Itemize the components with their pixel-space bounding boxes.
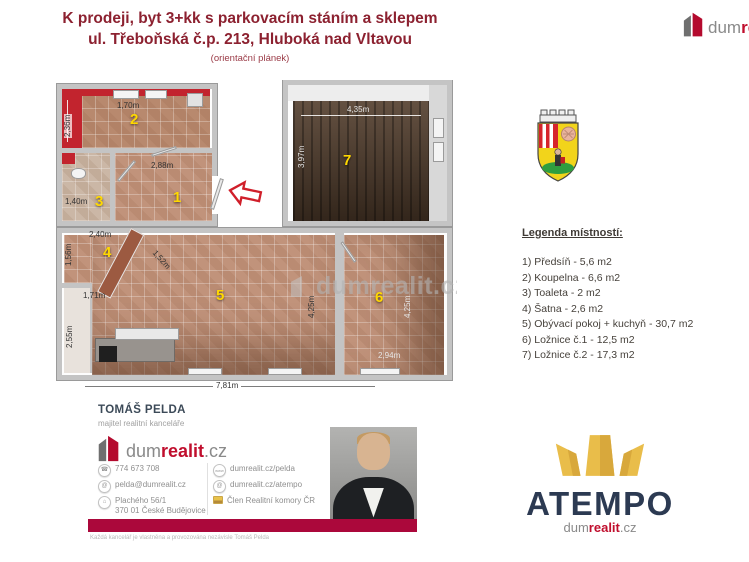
room-number-1: 1 <box>173 189 181 206</box>
agent-web-office: dumrealit.cz/atempo <box>230 480 302 490</box>
location-icon: ⌂ <box>98 496 111 509</box>
agent-email: pelda@dumrealit.cz <box>115 480 186 490</box>
dumrealit-logo-card: dumrealit.cz <box>97 434 257 466</box>
dim-room2-width: 1,70m <box>117 102 139 110</box>
page-title: K prodeji, byt 3+kk s parkovacím stáním … <box>15 8 485 29</box>
legend: Legenda místností: 1) Předsíň - 5,6 m2 2… <box>522 227 747 364</box>
room-number-5: 5 <box>216 287 224 304</box>
dim-room7-height: 3,97m <box>298 146 306 168</box>
legend-item: 4) Šatna - 2,6 m2 <box>522 302 747 318</box>
agent-membership: Člen Realitní komory ČR <box>227 496 315 506</box>
washing-machine <box>187 93 203 107</box>
window <box>268 368 302 375</box>
contact-web-row: www dumrealit.cz/pelda <box>213 464 295 477</box>
toilet-bowl <box>71 168 86 179</box>
room-number-2: 2 <box>130 111 138 128</box>
page-subtitle-address: ul. Třeboňská č.p. 213, Hluboká nad Vlta… <box>15 29 485 50</box>
window <box>188 368 222 375</box>
www-icon: www <box>213 464 226 477</box>
agent-role: majitel realitní kanceláře <box>98 419 184 428</box>
dim-room5-width: 7,81m <box>213 382 241 390</box>
dim-room5-left: 2,55m <box>66 326 74 348</box>
flyer-page: K prodeji, byt 3+kk s parkovacím stáním … <box>0 0 749 562</box>
legend-item: 3) Toaleta - 2 m2 <box>522 286 747 302</box>
entrance-arrow-icon <box>227 180 263 207</box>
dumrealit-house-icon <box>683 10 704 40</box>
card-divider <box>207 463 208 515</box>
toilet-red-corner <box>62 153 75 164</box>
contact-web2-row: @ dumrealit.cz/atempo <box>213 480 302 493</box>
agent-address: Plachého 56/1 370 01 České Budějovice <box>115 496 206 515</box>
dim-room5-left2: 1,71m <box>83 292 105 300</box>
room-number-4: 4 <box>103 244 111 261</box>
atempo-crown-icon <box>540 430 660 486</box>
phone-icon: ☎ <box>98 464 111 477</box>
atempo-logo-text: ATEMPO <box>495 485 705 523</box>
dim-room6-width: 2,94m <box>378 352 400 360</box>
contact-email-row: @ pelda@dumrealit.cz <box>98 480 186 493</box>
contact-address-row: ⌂ Plachého 56/1 370 01 České Budějovice <box>98 496 206 515</box>
card-red-bar <box>88 519 417 532</box>
agent-web-profile: dumrealit.cz/pelda <box>230 464 295 474</box>
floor-plan: 2 3 1 2,36m 1,70m 2,88m 1,40m 7 4,35m 3,… <box>55 80 457 394</box>
dim-room2-height: 2,36m <box>64 114 72 138</box>
legend-item: 2) Koupelna - 6,6 m2 <box>522 271 747 287</box>
at-icon: @ <box>213 480 226 493</box>
atempo-dumrealit-text: dumrealit.cz <box>495 520 705 535</box>
page-note: (orientační plánek) <box>15 53 485 64</box>
legend-title: Legenda místností: <box>522 227 747 239</box>
watermark-house-icon <box>291 276 311 297</box>
legend-item: 5) Obývací pokoj + kuchyň - 30,7 m2 <box>522 317 747 333</box>
membership-row: Člen Realitní komory ČR <box>213 496 315 506</box>
window <box>360 368 400 375</box>
room-number-7: 7 <box>343 152 351 169</box>
room-number-3: 3 <box>95 193 103 210</box>
kitchen-appliance <box>99 346 117 362</box>
legend-item: 7) Ložnice č.2 - 17,3 m2 <box>522 348 747 364</box>
bathroom-sink-2 <box>145 90 167 99</box>
dumrealit-house-icon <box>97 435 121 463</box>
window <box>433 118 444 138</box>
dim-room1-width: 2,88m <box>151 162 173 170</box>
membership-flag-icon <box>213 496 223 504</box>
room-7-top-wall <box>288 85 447 101</box>
email-icon: @ <box>98 480 111 493</box>
card-disclaimer: Každá kancelář je vlastněna a provozován… <box>90 535 269 541</box>
photo-head <box>357 433 390 470</box>
agent-name: TOMÁŠ PELDA <box>98 404 186 416</box>
agent-photo <box>330 427 417 519</box>
window <box>433 142 444 162</box>
dim-room3-width: 1,40m <box>65 198 87 206</box>
dim-room4-height: 1,56m <box>65 244 73 266</box>
dumrealit-logo-text-partial: dumre <box>708 18 749 38</box>
watermark: dumrealit.cz <box>291 272 457 301</box>
agent-phone: 774 673 708 <box>115 464 160 474</box>
dim-room7-width: 4,35m <box>347 106 369 114</box>
legend-item: 6) Ložnice č.1 - 12,5 m2 <box>522 333 747 349</box>
header: K prodeji, byt 3+kk s parkovacím stáním … <box>15 8 485 64</box>
kitchen-cabinet <box>115 328 179 340</box>
bathroom-sink <box>113 90 139 99</box>
dumrealit-logo-top: dumre <box>683 10 749 44</box>
wall <box>335 230 344 378</box>
measure-line <box>301 115 421 116</box>
dim-room4-width: 2,40m <box>89 231 111 239</box>
city-coat-of-arms <box>528 106 588 188</box>
legend-item: 1) Předsíň - 5,6 m2 <box>522 255 747 271</box>
contact-phone-row: ☎ 774 673 708 <box>98 464 160 477</box>
room-7-floor <box>293 101 429 221</box>
dumrealit-logo-text: dumrealit.cz <box>126 441 227 462</box>
legend-list: 1) Předsíň - 5,6 m2 2) Koupelna - 6,6 m2… <box>522 255 747 364</box>
